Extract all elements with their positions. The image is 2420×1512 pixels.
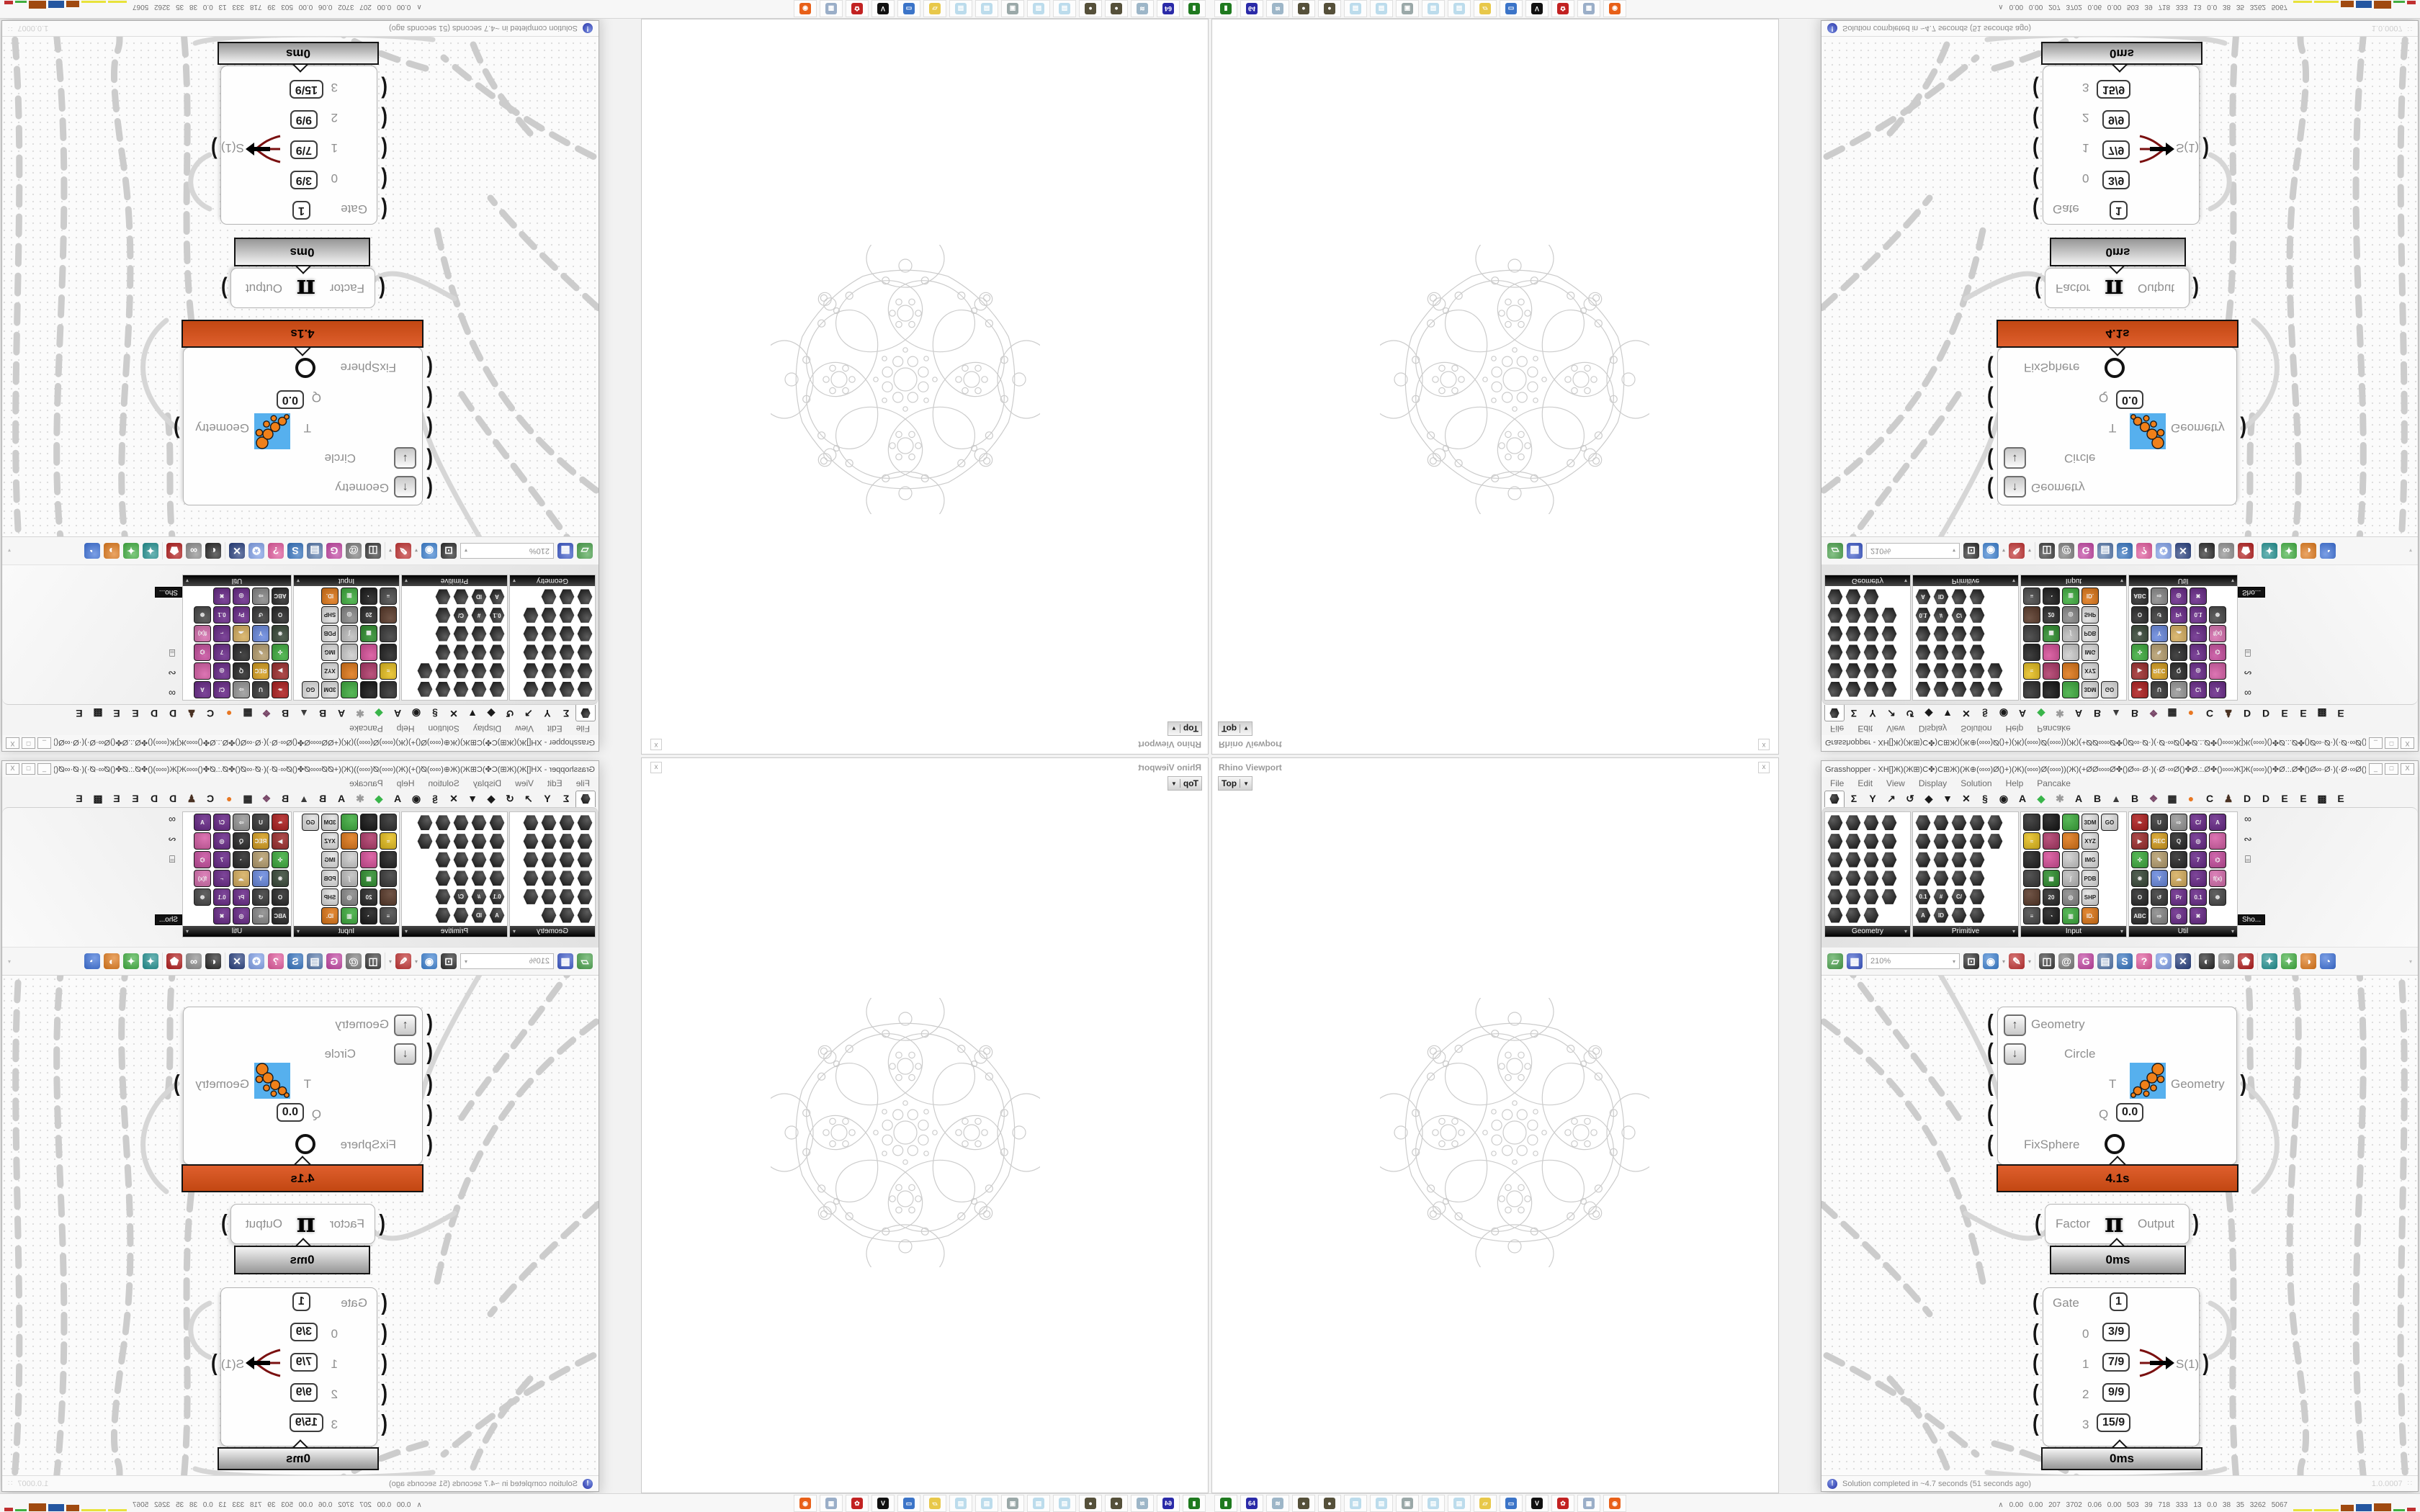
- component-icon[interactable]: [541, 907, 557, 923]
- tab-curve[interactable]: ↺: [1901, 791, 1919, 806]
- tab-maths[interactable]: Σ: [557, 791, 575, 806]
- component-icon[interactable]: ◎: [341, 888, 358, 906]
- tab-addon-e3[interactable]: E: [70, 791, 89, 806]
- component-icon[interactable]: [2062, 814, 2079, 831]
- menu-item-pancake[interactable]: Pancake: [349, 724, 383, 734]
- component-icon[interactable]: ✖: [2190, 588, 2207, 605]
- component-icon[interactable]: [453, 870, 469, 886]
- taskbar-button[interactable]: ✿: [1551, 1495, 1574, 1512]
- component-icon[interactable]: [453, 815, 469, 831]
- component-icon[interactable]: [471, 626, 487, 642]
- ball-blue-button[interactable]: ◔: [84, 543, 100, 559]
- component-icon[interactable]: [360, 851, 377, 868]
- tab-addon-b2[interactable]: B: [276, 706, 295, 721]
- component-icon[interactable]: [1969, 626, 1985, 642]
- component-icon[interactable]: [453, 644, 469, 660]
- taskbar-button[interactable]: 64: [1157, 1495, 1180, 1512]
- component-icon[interactable]: ✖: [2190, 907, 2207, 924]
- tab-transform[interactable]: §: [1976, 706, 1994, 721]
- component-icon[interactable]: [577, 907, 593, 923]
- component-icon[interactable]: ◎: [233, 907, 250, 924]
- taskbar-button[interactable]: ●: [1079, 0, 1102, 17]
- gift-button[interactable]: ?: [268, 953, 284, 969]
- tab-addon-b2[interactable]: B: [276, 791, 295, 806]
- component-icon[interactable]: [435, 889, 451, 905]
- component-icon[interactable]: [1915, 833, 1931, 849]
- input-wire-stub[interactable]: (: [1987, 453, 1994, 469]
- component-icon[interactable]: [577, 607, 593, 623]
- component-icon[interactable]: 0.1: [489, 607, 505, 623]
- preview-wire-button[interactable]: ∞: [186, 953, 202, 969]
- taskbar-button[interactable]: ●: [1292, 1495, 1315, 1512]
- tab-params[interactable]: [1824, 791, 1845, 807]
- component-icon[interactable]: ❋: [2131, 625, 2148, 642]
- component-icon[interactable]: C/: [2190, 814, 2207, 831]
- taskbar-button[interactable]: ●: [1318, 0, 1341, 17]
- component-icon[interactable]: A: [194, 814, 211, 831]
- taskbar-button[interactable]: ▤: [1027, 1495, 1050, 1512]
- viewport-projection-dropdown[interactable]: Top ▼: [1218, 776, 1252, 791]
- component-icon[interactable]: [380, 644, 397, 661]
- save-file-button[interactable]: ▦: [557, 953, 573, 969]
- open-file-button[interactable]: ▱: [577, 953, 593, 969]
- stream-value-box[interactable]: 3/9: [2102, 1323, 2130, 1341]
- taskbar-button[interactable]: ✿: [846, 1495, 869, 1512]
- component-icon[interactable]: ▦: [360, 870, 377, 887]
- component-icon[interactable]: [541, 815, 557, 831]
- component-icon[interactable]: SHP: [321, 888, 339, 906]
- component-icon[interactable]: [1969, 607, 1985, 623]
- component-icon[interactable]: C/: [1951, 889, 1967, 905]
- input-wire-stub[interactable]: (: [426, 391, 433, 408]
- component-icon[interactable]: [541, 889, 557, 905]
- viewport-close-button[interactable]: x: [650, 762, 662, 773]
- minimize-button[interactable]: _: [2369, 763, 2383, 775]
- fixsphere-component[interactable]: ( ( ( ( ( ) ↑ ↓ Geometry Circle T: [1997, 1007, 2237, 1165]
- eyeglasses-icon[interactable]: ∞: [2239, 811, 2257, 826]
- input-wire-stub[interactable]: (: [2033, 81, 2039, 98]
- component-icon[interactable]: ABC: [2131, 907, 2148, 924]
- taskbar-button[interactable]: ▤: [1422, 1495, 1445, 1512]
- chevron-down-icon[interactable]: ▾: [2409, 958, 2412, 965]
- tab-display[interactable]: ◉: [1994, 706, 2013, 721]
- component-icon[interactable]: [435, 833, 451, 849]
- tab-addon-e3[interactable]: E: [2331, 706, 2350, 721]
- component-icon[interactable]: ≡: [380, 907, 397, 924]
- resize-grip[interactable]: ∷: [8, 24, 12, 32]
- stream-value-box[interactable]: 7/9: [2102, 1353, 2130, 1372]
- balloon-button[interactable]: ✪: [2156, 953, 2172, 969]
- taskbar-button[interactable]: ▤: [1344, 0, 1367, 17]
- resize-grip[interactable]: ∷: [2408, 1480, 2412, 1488]
- component-icon[interactable]: U: [2151, 681, 2168, 698]
- menu-item-help[interactable]: Help: [2006, 778, 2024, 788]
- tab-addon-shield[interactable]: ❖: [2144, 791, 2163, 806]
- component-icon[interactable]: [489, 626, 505, 642]
- taskbar-button[interactable]: ≋: [1266, 1495, 1289, 1512]
- output-wire-stub[interactable]: ): [2202, 142, 2209, 158]
- component-icon[interactable]: 3DM: [2081, 814, 2099, 831]
- tab-vector[interactable]: ↗: [519, 706, 538, 721]
- component-icon[interactable]: ⌬: [2209, 851, 2226, 868]
- preview-gem-button[interactable]: ⬟: [2238, 953, 2254, 969]
- component-icon[interactable]: ID.: [2081, 588, 2099, 605]
- input-wire-stub[interactable]: (: [381, 81, 387, 98]
- component-icon[interactable]: [577, 833, 593, 849]
- chevron-up-icon[interactable]: ∧: [416, 3, 421, 11]
- input-wire-stub[interactable]: (: [381, 1294, 387, 1310]
- ball-orange-button[interactable]: ◑: [2300, 953, 2316, 969]
- component-icon[interactable]: [1881, 644, 1897, 660]
- stream-value-box[interactable]: 7/9: [290, 1353, 318, 1372]
- ball-orange-button[interactable]: ◑: [104, 543, 120, 559]
- component-icon[interactable]: C/: [2190, 681, 2207, 698]
- component-icon[interactable]: IMG: [2081, 644, 2099, 661]
- menu-item-pancake[interactable]: Pancake: [2037, 724, 2071, 734]
- menu-item-pancake[interactable]: Pancake: [349, 778, 383, 788]
- jump-wires-button[interactable]: ✕: [229, 543, 245, 559]
- component-icon[interactable]: ◔: [233, 851, 250, 868]
- taskbar-button[interactable]: ▣: [1396, 1495, 1419, 1512]
- component-icon[interactable]: [523, 833, 539, 849]
- taskbar-button[interactable]: ▦: [820, 0, 843, 17]
- tab-addon-d2[interactable]: D: [2257, 706, 2275, 721]
- component-icon[interactable]: [1827, 589, 1843, 605]
- tab-curve[interactable]: ↺: [1901, 706, 1919, 721]
- component-icon[interactable]: ▶: [272, 662, 289, 680]
- taskbar-button[interactable]: ▱: [1474, 0, 1497, 17]
- component-icon[interactable]: [435, 663, 451, 679]
- component-icon[interactable]: [453, 663, 469, 679]
- component-icon[interactable]: [523, 889, 539, 905]
- input-wire-stub[interactable]: (: [381, 202, 387, 219]
- component-icon[interactable]: [2043, 832, 2060, 850]
- component-icon[interactable]: [1951, 870, 1967, 886]
- output-wire-stub[interactable]: ): [2240, 1075, 2246, 1092]
- component-icon[interactable]: PDB: [321, 625, 339, 642]
- taskbar-button[interactable]: ▮: [1214, 1495, 1237, 1512]
- fixsphere-component[interactable]: ( ( ( ( ( ) ↑ ↓ Geometry Circle T: [1997, 347, 2237, 505]
- component-icon[interactable]: [1827, 833, 1843, 849]
- component-icon[interactable]: Y: [2151, 625, 2168, 642]
- q-value-box[interactable]: 0.0: [2116, 1103, 2143, 1122]
- tab-addon-orange[interactable]: ●: [220, 791, 238, 806]
- input-wire-stub[interactable]: (: [426, 453, 433, 469]
- finder-button[interactable]: S: [287, 543, 303, 559]
- component-icon[interactable]: [1827, 644, 1843, 660]
- tab-vector[interactable]: ↗: [519, 791, 538, 806]
- stream-value-box[interactable]: 3/9: [2102, 171, 2130, 189]
- menu-item-help[interactable]: Help: [2006, 724, 2024, 734]
- component-icon[interactable]: ❧: [272, 814, 289, 831]
- tab-intersect[interactable]: ✕: [1957, 706, 1976, 721]
- component-icon[interactable]: [1951, 833, 1967, 849]
- tab-addon-b1[interactable]: B: [313, 706, 332, 721]
- stream-value-box[interactable]: 9/9: [2102, 110, 2130, 129]
- component-icon[interactable]: [417, 663, 433, 679]
- component-icon[interactable]: [453, 907, 469, 923]
- component-icon[interactable]: [523, 852, 539, 868]
- component-icon[interactable]: [489, 681, 505, 697]
- component-icon[interactable]: [2062, 832, 2079, 850]
- component-icon[interactable]: ◎: [341, 606, 358, 624]
- eyeglasses-sketch-icon[interactable]: ∾: [163, 666, 181, 680]
- component-icon[interactable]: ❧: [2131, 814, 2148, 831]
- tab-addon-flower[interactable]: ✱: [351, 791, 369, 806]
- component-icon[interactable]: [1845, 607, 1861, 623]
- taskbar-button[interactable]: ▤: [1448, 1495, 1471, 1512]
- component-icon[interactable]: [1845, 626, 1861, 642]
- fixsphere-toggle[interactable]: [2105, 358, 2125, 378]
- component-icon[interactable]: [1845, 852, 1861, 868]
- component-icon[interactable]: [1933, 815, 1949, 831]
- component-icon[interactable]: [523, 644, 539, 660]
- input-wire-stub[interactable]: (: [426, 1075, 433, 1092]
- input-wire-stub[interactable]: (: [426, 1135, 433, 1152]
- component-icon[interactable]: [1863, 833, 1879, 849]
- preview-eye-button[interactable]: ◉: [421, 953, 437, 969]
- close-button[interactable]: X: [2401, 737, 2414, 749]
- chevron-down-icon[interactable]: ▾: [415, 548, 418, 554]
- component-icon[interactable]: ▶: [2131, 832, 2148, 850]
- component-icon[interactable]: [453, 681, 469, 697]
- panel-label[interactable]: Primitive▾: [402, 575, 507, 586]
- input-wire-stub[interactable]: (: [2033, 1294, 2039, 1310]
- component-icon[interactable]: IMG: [321, 644, 339, 661]
- stream-filter-component[interactable]: ( ( ( ( ( ) Gate 1 0 3/9 1 7/9: [2043, 66, 2200, 225]
- rhino-viewport[interactable]: Rhino Viewport Top ▼ x: [1211, 19, 1779, 755]
- tab-transform[interactable]: §: [1976, 791, 1994, 806]
- balloon-button[interactable]: ✪: [2156, 543, 2172, 559]
- component-icon[interactable]: 0.1: [213, 606, 230, 624]
- component-icon[interactable]: [1845, 815, 1861, 831]
- component-icon[interactable]: [1969, 663, 1985, 679]
- tab-addon-flower[interactable]: ✱: [2051, 706, 2069, 721]
- component-icon[interactable]: ◎: [2170, 907, 2187, 924]
- gift-button[interactable]: ?: [2136, 543, 2152, 559]
- rhino-viewport[interactable]: Rhino Viewport Top ▼ x: [641, 19, 1209, 755]
- component-icon[interactable]: 0.1: [1915, 607, 1931, 623]
- component-icon[interactable]: IMG: [321, 851, 339, 868]
- menu-item-display[interactable]: Display: [473, 724, 501, 734]
- component-icon[interactable]: PDB: [2081, 625, 2099, 642]
- component-icon[interactable]: ABC: [272, 588, 289, 605]
- component-icon[interactable]: Q: [233, 662, 250, 680]
- tab-addon-c[interactable]: C: [2200, 791, 2219, 806]
- panel-label[interactable]: Primitive▾: [1913, 926, 2018, 937]
- open-file-button[interactable]: ▱: [1827, 543, 1843, 559]
- component-icon[interactable]: [577, 815, 593, 831]
- component-icon[interactable]: [1969, 589, 1985, 605]
- component-icon[interactable]: [2023, 625, 2040, 642]
- component-icon[interactable]: [435, 589, 451, 605]
- tab-addon-e1[interactable]: E: [126, 791, 145, 806]
- component-icon[interactable]: Y: [252, 870, 269, 887]
- tab-addon-bird[interactable]: ♟: [182, 706, 201, 721]
- component-icon[interactable]: [541, 644, 557, 660]
- component-icon[interactable]: [1881, 681, 1897, 697]
- finder-button[interactable]: S: [2117, 953, 2133, 969]
- component-icon[interactable]: 20: [360, 888, 377, 906]
- zoom-extents-button[interactable]: ⊡: [1963, 543, 1979, 559]
- component-icon[interactable]: C/: [453, 607, 469, 623]
- tab-maths[interactable]: Σ: [557, 706, 575, 721]
- component-icon[interactable]: [1827, 663, 1843, 679]
- tab-addon-grid1[interactable]: ▦: [2163, 706, 2182, 721]
- panel-label[interactable]: Util▾: [2129, 575, 2237, 586]
- component-icon[interactable]: SHP: [2081, 888, 2099, 906]
- menu-item-solution[interactable]: Solution: [1960, 724, 1991, 734]
- component-icon[interactable]: [541, 833, 557, 849]
- tab-transform[interactable]: §: [426, 791, 444, 806]
- exposure-button[interactable]: ◫: [2039, 543, 2055, 559]
- tab-addon-mountain[interactable]: ▲: [2107, 706, 2125, 721]
- component-icon[interactable]: [541, 870, 557, 886]
- component-icon[interactable]: [471, 833, 487, 849]
- component-icon[interactable]: ID: [471, 589, 487, 605]
- taskbar-button[interactable]: ▤: [1370, 1495, 1393, 1512]
- report-button[interactable]: ▤: [307, 953, 323, 969]
- component-icon[interactable]: ❧: [272, 681, 289, 698]
- component-icon[interactable]: [523, 663, 539, 679]
- q-value-box[interactable]: 0.0: [277, 1103, 304, 1122]
- tab-addon-b1[interactable]: B: [2088, 706, 2107, 721]
- eyeglasses-sketch-icon[interactable]: ∾: [2239, 832, 2257, 846]
- input-wire-stub[interactable]: (: [426, 361, 433, 377]
- component-icon[interactable]: ☁: [2170, 625, 2187, 642]
- zoom-level-select[interactable]: 210%▾: [460, 543, 554, 559]
- tab-addon-d2[interactable]: D: [145, 791, 163, 806]
- component-icon[interactable]: ID: [1933, 907, 1949, 923]
- stream-value-box[interactable]: 15/9: [290, 80, 323, 99]
- preview-eye-button[interactable]: ◉: [1983, 543, 1999, 559]
- preview-wire-button[interactable]: ∞: [2218, 953, 2234, 969]
- panel-label[interactable]: Input▾: [2021, 575, 2126, 586]
- graft-up-button[interactable]: ↑: [394, 1014, 416, 1036]
- component-icon[interactable]: #: [1933, 889, 1949, 905]
- stream-value-box[interactable]: 3/9: [290, 1323, 318, 1341]
- pin-green-button[interactable]: ✦: [2281, 953, 2297, 969]
- tab-addon-c[interactable]: C: [2200, 706, 2219, 721]
- component-icon[interactable]: ✣: [2131, 644, 2148, 661]
- viewport-projection-dropdown[interactable]: Top ▼: [1168, 776, 1202, 791]
- component-icon[interactable]: ⌐: [213, 625, 230, 642]
- component-icon[interactable]: ⌐: [2190, 870, 2207, 887]
- component-icon[interactable]: [1969, 681, 1985, 697]
- tab-addon-bird[interactable]: ♟: [2219, 791, 2238, 806]
- component-icon[interactable]: ↺: [2151, 888, 2168, 906]
- component-icon[interactable]: [577, 644, 593, 660]
- component-icon[interactable]: PDB: [2081, 870, 2099, 887]
- menu-item-help[interactable]: Help: [397, 778, 415, 788]
- component-icon[interactable]: [1845, 907, 1861, 923]
- publish-at-button[interactable]: @: [346, 543, 362, 559]
- component-icon[interactable]: 3DM: [321, 681, 339, 698]
- fixsphere-toggle[interactable]: [295, 358, 315, 378]
- panel-label[interactable]: Primitive▾: [1913, 575, 2018, 586]
- component-icon[interactable]: [1951, 644, 1967, 660]
- tab-display[interactable]: ◉: [1994, 791, 2013, 806]
- component-icon[interactable]: A: [1915, 907, 1931, 923]
- taskbar-button[interactable]: ▤: [1370, 0, 1393, 17]
- report-button[interactable]: ▤: [307, 543, 323, 559]
- input-wire-stub[interactable]: (: [1987, 361, 1994, 377]
- component-icon[interactable]: [1915, 644, 1931, 660]
- tab-addon-grid2[interactable]: ▩: [89, 791, 107, 806]
- q-value-box[interactable]: 0.0: [277, 390, 304, 409]
- jump-wires-button[interactable]: ✕: [2175, 543, 2191, 559]
- stream-value-box[interactable]: 15/9: [290, 1413, 323, 1432]
- tab-addon-d2[interactable]: D: [2257, 791, 2275, 806]
- menu-item-view[interactable]: View: [1886, 724, 1905, 734]
- chevron-down-icon[interactable]: ▾: [2002, 548, 2005, 554]
- open-file-button[interactable]: ▱: [577, 543, 593, 559]
- minimize-button[interactable]: _: [2369, 737, 2383, 749]
- component-icon[interactable]: [1881, 626, 1897, 642]
- component-icon[interactable]: ⇨: [2151, 588, 2168, 605]
- component-icon[interactable]: Pr: [233, 606, 250, 624]
- gha-assembler-button[interactable]: G: [326, 953, 342, 969]
- component-icon[interactable]: f(x): [2209, 870, 2226, 887]
- component-icon[interactable]: [1969, 870, 1985, 886]
- component-icon[interactable]: ⇨: [252, 907, 269, 924]
- pin-green-button[interactable]: ✦: [2281, 543, 2297, 559]
- fixsphere-toggle[interactable]: [2105, 1134, 2125, 1154]
- component-icon[interactable]: 7: [2190, 851, 2207, 868]
- component-icon[interactable]: ⇨: [2151, 907, 2168, 924]
- component-icon[interactable]: ✣: [2131, 851, 2148, 868]
- component-icon[interactable]: ✖: [213, 907, 230, 924]
- component-icon[interactable]: ⇨: [233, 681, 250, 698]
- maximize-button[interactable]: □: [2385, 763, 2398, 775]
- chevron-down-icon[interactable]: ▾: [2002, 958, 2005, 965]
- taskbar-button[interactable]: ◉: [794, 0, 817, 17]
- tab-surface[interactable]: ◆: [482, 706, 501, 721]
- component-icon[interactable]: REC: [252, 832, 269, 850]
- component-icon[interactable]: O: [272, 606, 289, 624]
- easel-icon[interactable]: ⌸: [163, 646, 181, 660]
- tab-addon-a1[interactable]: A: [388, 791, 407, 806]
- component-icon[interactable]: [1827, 815, 1843, 831]
- tab-mesh[interactable]: ▼: [463, 791, 482, 806]
- ball-blue-button[interactable]: ◔: [2320, 543, 2336, 559]
- component-icon[interactable]: [559, 907, 575, 923]
- grasshopper-canvas[interactable]: ( ( ( ( ( ) ↑ ↓ Geometry Circle T: [2, 37, 599, 536]
- component-icon[interactable]: [523, 607, 539, 623]
- component-icon[interactable]: [2209, 832, 2226, 850]
- component-icon[interactable]: IMG: [2081, 851, 2099, 868]
- component-icon[interactable]: ✎: [252, 644, 269, 661]
- gate-value-box[interactable]: 1: [2110, 1292, 2128, 1311]
- component-icon[interactable]: [1827, 626, 1843, 642]
- component-icon[interactable]: [360, 681, 377, 698]
- component-icon[interactable]: [1951, 681, 1967, 697]
- component-icon[interactable]: [541, 852, 557, 868]
- input-wire-stub[interactable]: (: [2035, 282, 2041, 298]
- component-icon[interactable]: ☸: [194, 606, 211, 624]
- component-icon[interactable]: [1969, 815, 1985, 831]
- component-icon[interactable]: [577, 681, 593, 697]
- gate-value-box[interactable]: 1: [2110, 201, 2128, 220]
- component-icon[interactable]: [1987, 681, 2003, 697]
- tab-addon-b1[interactable]: B: [2088, 791, 2107, 806]
- input-wire-stub[interactable]: (: [381, 1415, 387, 1431]
- tab-addon-e2[interactable]: E: [107, 791, 126, 806]
- component-icon[interactable]: Pr: [2170, 888, 2187, 906]
- preview-gem-button[interactable]: ⬟: [166, 953, 182, 969]
- component-icon[interactable]: ◎: [2062, 888, 2079, 906]
- preview-shaded-button[interactable]: ◐: [2199, 953, 2215, 969]
